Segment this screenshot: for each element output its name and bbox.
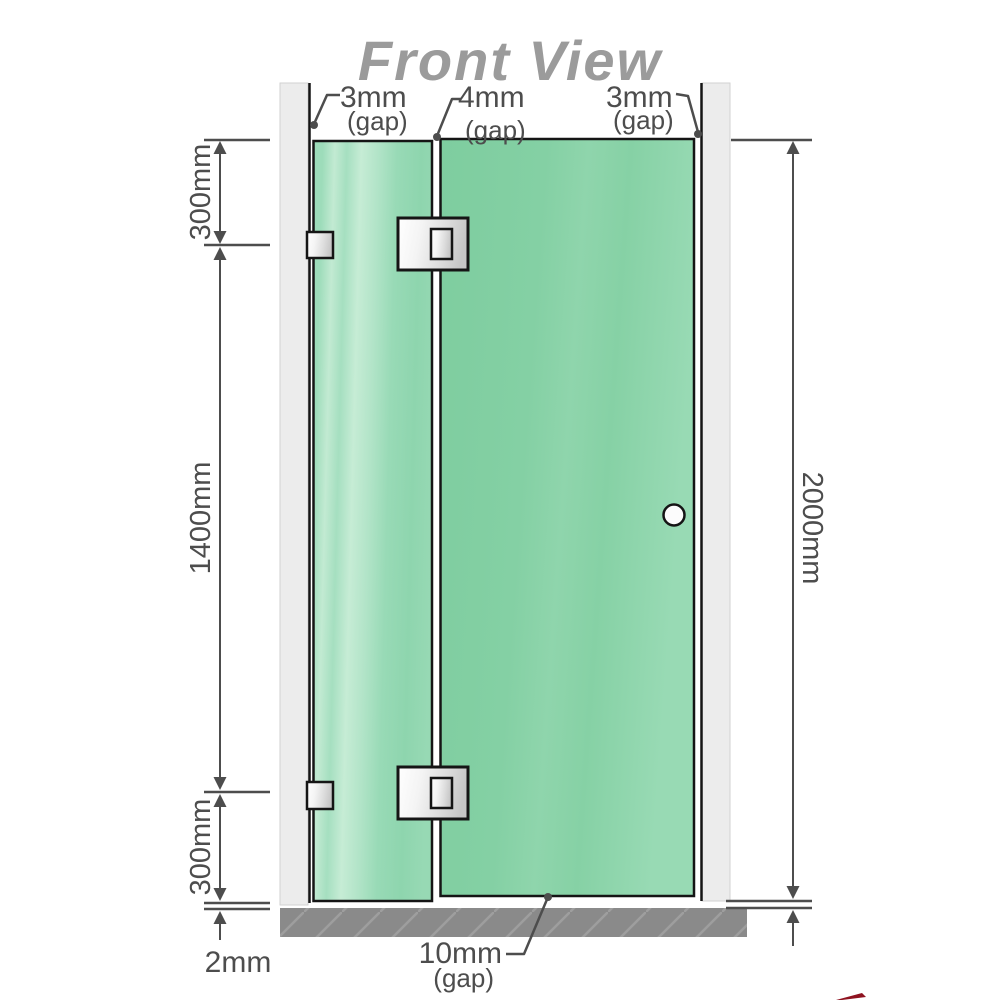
dim-label-right-2000mm: 2000mm: [796, 472, 828, 585]
hinge-top-knuckle: [431, 229, 452, 259]
wall-bracket-top: [307, 232, 333, 258]
gap-suffix-left: (gap): [347, 106, 408, 136]
top-gap-callout-right: 3mm (gap): [606, 81, 702, 138]
dim-label-floor-gap-2mm: 2mm: [205, 946, 272, 979]
wall-bracket-bottom: [307, 782, 333, 809]
door-glass-panel: [441, 139, 695, 896]
diagram-canvas: Front View: [0, 0, 1000, 1000]
door-knob: [664, 505, 685, 526]
dim-label-left-middle-1400mm: 1400mm: [185, 462, 217, 575]
gap-value-middle: 4mm: [458, 81, 525, 114]
gap-suffix-right: (gap): [613, 105, 674, 135]
watermark-red-sliver: [836, 993, 866, 1000]
hinge-top: [398, 218, 468, 270]
bottom-gap-suffix: (gap): [433, 963, 494, 993]
dim-label-left-bottom-300mm: 300mm: [185, 799, 217, 896]
top-gap-callout-left: 3mm (gap): [310, 81, 408, 136]
hinge-bottom: [398, 767, 468, 819]
dim-label-left-top-300mm: 300mm: [185, 144, 217, 241]
gap-suffix-middle: (gap): [465, 115, 526, 145]
front-view-diagram: Front View: [0, 0, 1000, 1000]
floor-hatch-texture: [280, 908, 747, 937]
left-wall: [280, 83, 308, 905]
right-wall: [702, 83, 730, 901]
hinge-bottom-knuckle: [431, 778, 452, 808]
